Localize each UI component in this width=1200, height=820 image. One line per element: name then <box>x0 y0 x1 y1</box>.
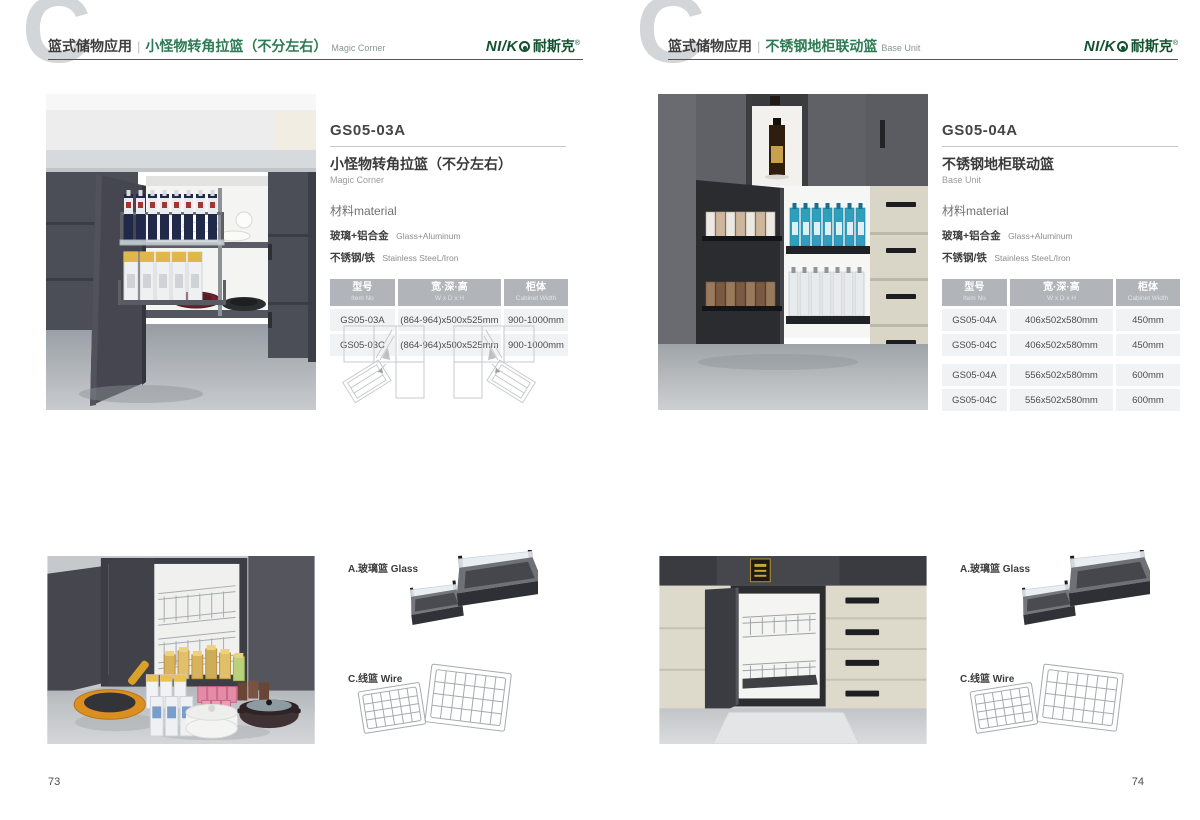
corner-diagram-left <box>338 320 430 405</box>
material-item: 不锈钢/铁 Stainless SteeL/Iron <box>330 248 566 266</box>
cell-model: GS05-04A <box>942 309 1007 331</box>
spec-table-row: GS05-04C 556x502x580mm 600mm <box>942 389 1180 411</box>
display-niche <box>752 94 802 186</box>
spec-table-row: GS05-04A 406x502x580mm 450mm <box>942 309 1180 331</box>
cartons <box>124 252 202 302</box>
material-cn: 玻璃+铝合金 <box>330 230 389 242</box>
wire-basket-illustration <box>350 658 525 753</box>
corner-wire-photo-illustration <box>46 556 316 744</box>
magic-corner-photo-illustration <box>46 94 316 410</box>
door-rack-top <box>702 212 782 241</box>
gold-label <box>750 559 770 582</box>
brand-logo: NI/K耐斯克® <box>486 36 580 56</box>
col-header-dimensions: 宽·深·高 W x D x H <box>1010 279 1113 306</box>
glass-tray-small <box>1020 580 1076 625</box>
spec-table-row: GS05-04C 406x502x580mm 450mm <box>942 334 1180 356</box>
product-info: GS05-04A 不锈钢地柜联动篮 Base Unit 材料material 玻… <box>942 122 1178 414</box>
cell-dimensions: 556x502x580mm <box>1010 364 1113 386</box>
page-header: 篮式储物应用|不锈钢地柜联动篮Base Unit <box>668 36 920 56</box>
corner-diagram-right <box>448 320 540 405</box>
cell-cabinet: 600mm <box>1116 364 1180 386</box>
logo-o-icon <box>519 41 530 52</box>
spec-table-header-row: 型号 Item No 宽·深·高 W x D x H 柜体 Cabinet Wi… <box>942 279 1180 306</box>
glass-basket-image <box>1020 550 1150 637</box>
glass-basket-illustration <box>1020 550 1150 632</box>
header-rule <box>668 59 1178 60</box>
spec-table-header-row: 型号 Item No 宽·深·高 W x D x H 柜体 Cabinet Wi… <box>330 279 568 306</box>
product-photo-base-unit <box>658 94 928 410</box>
chocolate-packs <box>237 681 269 701</box>
page-number: 74 <box>1132 776 1144 788</box>
spec-table-row: GS05-04A 556x502x580mm 600mm <box>942 364 1180 386</box>
product-name-en: Base Unit <box>942 175 1178 185</box>
material-cn: 玻璃+铝合金 <box>942 230 1001 242</box>
logo-cn: 耐斯克 <box>1131 38 1173 54</box>
glass-basket-image <box>408 550 538 637</box>
glass-tray-large <box>1065 550 1150 606</box>
logo-o-dot <box>1121 46 1125 50</box>
wire-tray-large <box>1037 664 1123 731</box>
corner-layout-diagrams <box>338 320 540 405</box>
door-rack-bottom <box>702 282 782 311</box>
wire-tray-small <box>970 682 1038 733</box>
glass-basket-illustration <box>408 550 538 632</box>
cell-dimensions: 406x502x580mm <box>1010 334 1113 356</box>
col-header-model: 型号 Item No <box>330 279 395 306</box>
material-cn: 不锈钢/铁 <box>942 252 987 264</box>
product-name-en: Magic Corner <box>330 175 566 185</box>
white-pot <box>186 704 237 738</box>
material-label: 材料material <box>330 202 566 219</box>
catalog-page-right: C 篮式储物应用|不锈钢地柜联动篮Base Unit NI/K耐斯克® <box>600 0 1200 820</box>
logo-registered-mark: ® <box>1173 40 1178 47</box>
right-drawers <box>826 586 927 709</box>
wire-basket-image <box>350 658 525 758</box>
material-label: 材料material <box>942 202 1178 219</box>
product-photo-magic-corner <box>46 94 316 410</box>
cell-cabinet: 450mm <box>1116 309 1180 331</box>
material-en: Stainless SteeL/Iron <box>382 253 458 263</box>
top-right-cabinet <box>866 94 928 186</box>
material-en: Glass+Aluminum <box>1008 231 1072 241</box>
col-header-cabinet: 柜体 Cabinet Width <box>504 279 568 306</box>
cell-cabinet: 450mm <box>1116 334 1180 356</box>
logo-latin: NI/K <box>1084 38 1116 55</box>
col-header-cabinet: 柜体 Cabinet Width <box>1116 279 1180 306</box>
open-door <box>705 588 739 721</box>
header-category: 篮式储物应用 <box>668 38 752 54</box>
product-model: GS05-03A <box>330 122 566 147</box>
page-header: 篮式储物应用|小怪物转角拉篮（不分左右）Magic Corner <box>48 36 385 56</box>
base-wire-photo-illustration <box>658 556 928 744</box>
right-cabinet-drawers <box>268 172 316 362</box>
lifestyle-photo-base-wire <box>658 556 928 744</box>
cell-cabinet: 600mm <box>1116 389 1180 411</box>
material-cn: 不锈钢/铁 <box>330 252 375 264</box>
glass-tray-small <box>408 580 464 625</box>
header-category: 篮式储物应用 <box>48 38 132 54</box>
catalog-page-left: C 篮式储物应用|小怪物转角拉篮（不分左右）Magic Corner NI/K耐… <box>0 0 600 820</box>
cell-dimensions: 556x502x580mm <box>1010 389 1113 411</box>
cell-dimensions: 406x502x580mm <box>1010 309 1113 331</box>
header-title-cn: 小怪物转角拉篮（不分左右） <box>145 38 327 54</box>
product-name-cn: 小怪物转角拉篮（不分左右） <box>330 154 566 174</box>
col-header-model: 型号 Item No <box>942 279 1007 306</box>
page-number: 73 <box>48 776 60 788</box>
glass-tray-large <box>453 550 538 606</box>
material-en: Glass+Aluminum <box>396 231 460 241</box>
header-title-en: Magic Corner <box>331 43 385 53</box>
cell-model: GS05-04C <box>942 334 1007 356</box>
lifestyle-photo-corner-wire <box>46 556 316 744</box>
product-name-cn: 不锈钢地柜联动篮 <box>942 154 1178 174</box>
base-unit-photo-illustration <box>658 94 928 410</box>
header-separator: | <box>137 39 140 54</box>
header-separator: | <box>757 39 760 54</box>
logo-o-icon <box>1117 41 1128 52</box>
col-header-dimensions: 宽·深·高 W x D x H <box>398 279 501 306</box>
logo-latin: NI/K <box>486 38 518 55</box>
logo-o-dot <box>523 46 527 50</box>
logo-registered-mark: ® <box>575 40 580 47</box>
wire-tray-large <box>425 664 511 731</box>
brand-logo: NI/K耐斯克® <box>1084 36 1178 56</box>
material-item: 玻璃+铝合金 Glass+Aluminum <box>330 226 566 244</box>
material-item: 不锈钢/铁 Stainless SteeL/Iron <box>942 248 1178 266</box>
product-model: GS05-04A <box>942 122 1178 147</box>
cell-model: GS05-04C <box>942 389 1007 411</box>
material-list: 玻璃+铝合金 Glass+Aluminum 不锈钢/铁 Stainless St… <box>330 226 566 266</box>
logo-cn: 耐斯克 <box>533 38 575 54</box>
wire-tray-small <box>358 682 426 733</box>
header-rule <box>48 59 583 60</box>
blue-bottles-shelf <box>786 203 870 254</box>
material-en: Stainless SteeL/Iron <box>994 253 1070 263</box>
wire-basket-illustration <box>962 658 1137 753</box>
material-item: 玻璃+铝合金 Glass+Aluminum <box>942 226 1178 244</box>
spec-table: 型号 Item No 宽·深·高 W x D x H 柜体 Cabinet Wi… <box>942 279 1180 411</box>
material-list: 玻璃+铝合金 Glass+Aluminum 不锈钢/铁 Stainless St… <box>942 226 1178 266</box>
catalog-spread: C 篮式储物应用|小怪物转角拉篮（不分左右）Magic Corner NI/K耐… <box>0 0 1200 820</box>
header-title-en: Base Unit <box>881 43 920 53</box>
header-title-cn: 不锈钢地柜联动篮 <box>765 38 877 54</box>
cell-model: GS05-04A <box>942 364 1007 386</box>
open-door-with-racks <box>696 180 784 360</box>
wire-basket-image <box>962 658 1137 758</box>
